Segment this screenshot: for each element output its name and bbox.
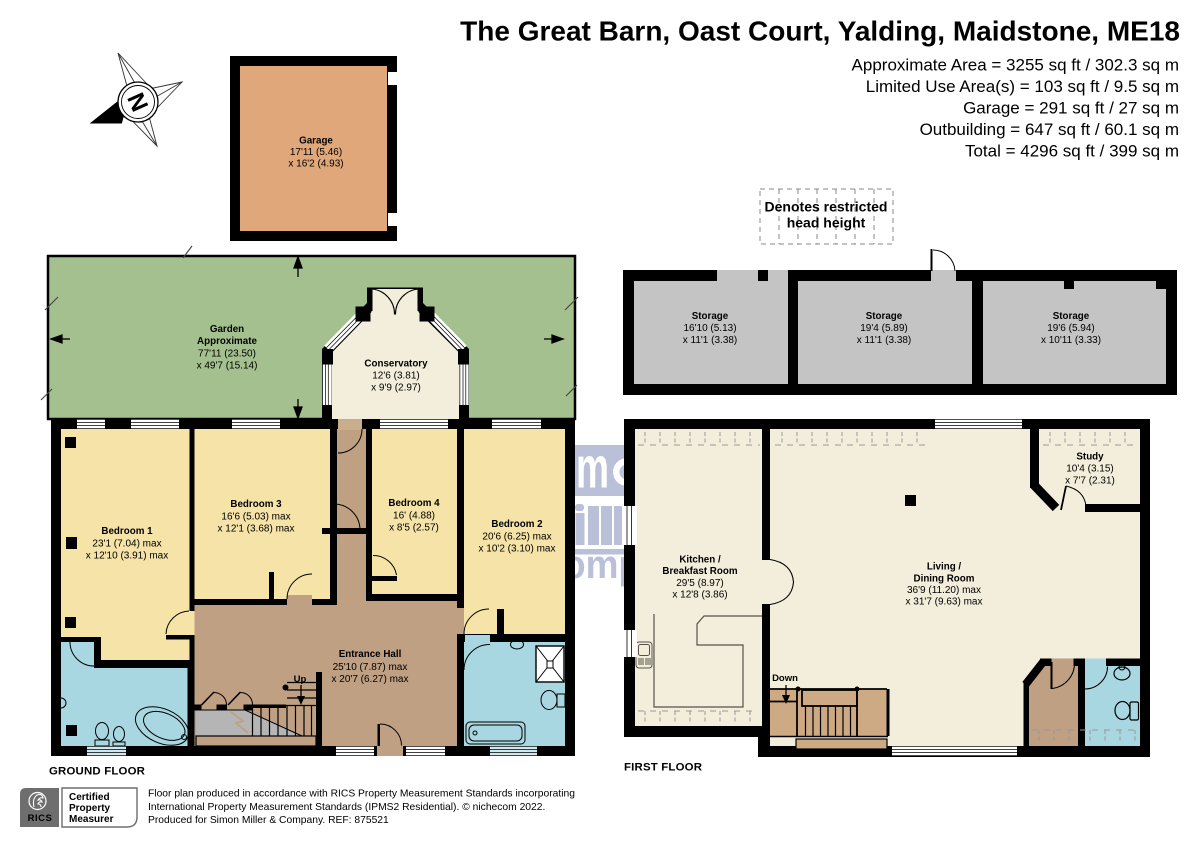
- svg-text:25'10 (7.87) max: 25'10 (7.87) max: [333, 662, 408, 673]
- svg-text:Dining Room: Dining Room: [914, 573, 975, 584]
- svg-text:x 31'7 (9.63) max: x 31'7 (9.63) max: [906, 596, 983, 607]
- svg-text:x 11'1 (3.38): x 11'1 (3.38): [857, 335, 912, 346]
- svg-text:Up: Up: [294, 674, 307, 685]
- svg-text:16'10 (5.13): 16'10 (5.13): [683, 323, 736, 334]
- svg-text:GROUND FLOOR: GROUND FLOOR: [49, 766, 145, 778]
- svg-text:Storage: Storage: [1053, 311, 1090, 322]
- svg-text:77'11 (23.50): 77'11 (23.50): [198, 349, 256, 360]
- svg-text:16' (4.88): 16' (4.88): [393, 511, 435, 522]
- svg-text:Produced for Simon Miller & Co: Produced for Simon Miller & Company. REF…: [148, 815, 389, 826]
- svg-text:x 20'7 (6.27) max: x 20'7 (6.27) max: [332, 674, 409, 685]
- svg-text:Garage = 291 sq ft / 27 sq m: Garage = 291 sq ft / 27 sq m: [963, 99, 1179, 118]
- svg-text:Property: Property: [69, 803, 111, 814]
- svg-text:Garage: Garage: [299, 136, 333, 147]
- svg-text:International Property Measure: International Property Measurement Stand…: [148, 802, 545, 813]
- svg-text:FIRST FLOOR: FIRST FLOOR: [624, 762, 702, 774]
- svg-text:Total = 4296 sq ft / 399 sq m: Total = 4296 sq ft / 399 sq m: [965, 142, 1179, 161]
- svg-text:36'9 (11.20) max: 36'9 (11.20) max: [907, 585, 981, 596]
- svg-text:19'6 (5.94): 19'6 (5.94): [1047, 323, 1095, 334]
- svg-text:Breakfast Room: Breakfast Room: [662, 566, 737, 577]
- svg-text:Conservatory: Conservatory: [364, 359, 428, 370]
- svg-text:Approximate: Approximate: [197, 336, 257, 347]
- svg-text:x 12'10 (3.91) max: x 12'10 (3.91) max: [86, 551, 169, 562]
- svg-text:16'6 (5.03) max: 16'6 (5.03) max: [221, 512, 290, 523]
- svg-text:x 12'1 (3.68) max: x 12'1 (3.68) max: [218, 524, 295, 535]
- svg-text:m: m: [576, 436, 609, 501]
- svg-text:Entrance Hall: Entrance Hall: [339, 649, 402, 660]
- svg-text:Bedroom 3: Bedroom 3: [230, 499, 282, 510]
- svg-text:Bedroom 1: Bedroom 1: [101, 526, 153, 537]
- svg-text:Floor plan produced in accorda: Floor plan produced in accordance with R…: [148, 789, 575, 800]
- svg-text:x 10'2 (3.10) max: x 10'2 (3.10) max: [479, 544, 556, 555]
- svg-text:x 16'2 (4.93): x 16'2 (4.93): [288, 159, 343, 170]
- svg-text:x 7'7 (2.31): x 7'7 (2.31): [1065, 476, 1115, 487]
- svg-text:The Great Barn, Oast Court, Ya: The Great Barn, Oast Court, Yalding, Mai…: [460, 16, 1180, 47]
- svg-text:Storage: Storage: [866, 311, 903, 322]
- svg-text:Measurer: Measurer: [69, 814, 114, 825]
- svg-text:Garden: Garden: [210, 324, 244, 335]
- svg-text:Certified: Certified: [69, 792, 110, 803]
- svg-text:Bedroom 4: Bedroom 4: [388, 498, 440, 509]
- svg-text:29'5 (8.97): 29'5 (8.97): [676, 578, 724, 589]
- svg-text:Study: Study: [1076, 452, 1104, 463]
- svg-text:Storage: Storage: [692, 311, 729, 322]
- svg-text:17'11 (5.46): 17'11 (5.46): [290, 147, 342, 158]
- svg-text:23'1 (7.04) max: 23'1 (7.04) max: [92, 539, 161, 550]
- svg-text:RICS: RICS: [28, 813, 53, 824]
- svg-text:Approximate Area = 3255 sq ft: Approximate Area = 3255 sq ft / 302.3 sq…: [852, 56, 1179, 75]
- svg-text:10'4 (3.15): 10'4 (3.15): [1066, 464, 1114, 475]
- svg-text:12'6 (3.81): 12'6 (3.81): [372, 371, 420, 382]
- svg-text:x 11'1 (3.38): x 11'1 (3.38): [683, 335, 738, 346]
- svg-text:x 9'9 (2.97): x 9'9 (2.97): [371, 383, 421, 394]
- svg-text:Bedroom 2: Bedroom 2: [491, 519, 543, 530]
- svg-text:Denotes restricted: Denotes restricted: [765, 199, 888, 215]
- svg-text:x 12'8 (3.86): x 12'8 (3.86): [672, 590, 727, 601]
- svg-text:head height: head height: [787, 215, 866, 231]
- svg-text:Outbuilding = 647 sq ft / 60.1: Outbuilding = 647 sq ft / 60.1 sq m: [920, 120, 1179, 139]
- svg-text:x 49'7 (15.14): x 49'7 (15.14): [197, 361, 258, 372]
- svg-text:19'4 (5.89): 19'4 (5.89): [860, 323, 908, 334]
- svg-text:x 8'5 (2.57): x 8'5 (2.57): [389, 523, 439, 534]
- svg-text:Kitchen /: Kitchen /: [679, 555, 721, 566]
- svg-text:Down: Down: [772, 673, 798, 684]
- svg-text:x 10'11 (3.33): x 10'11 (3.33): [1041, 335, 1101, 346]
- svg-text:Limited Use Area(s) = 103 sq f: Limited Use Area(s) = 103 sq ft / 9.5 sq…: [866, 77, 1179, 96]
- svg-text:20'6 (6.25) max: 20'6 (6.25) max: [482, 532, 551, 543]
- svg-text:Living /: Living /: [927, 562, 962, 573]
